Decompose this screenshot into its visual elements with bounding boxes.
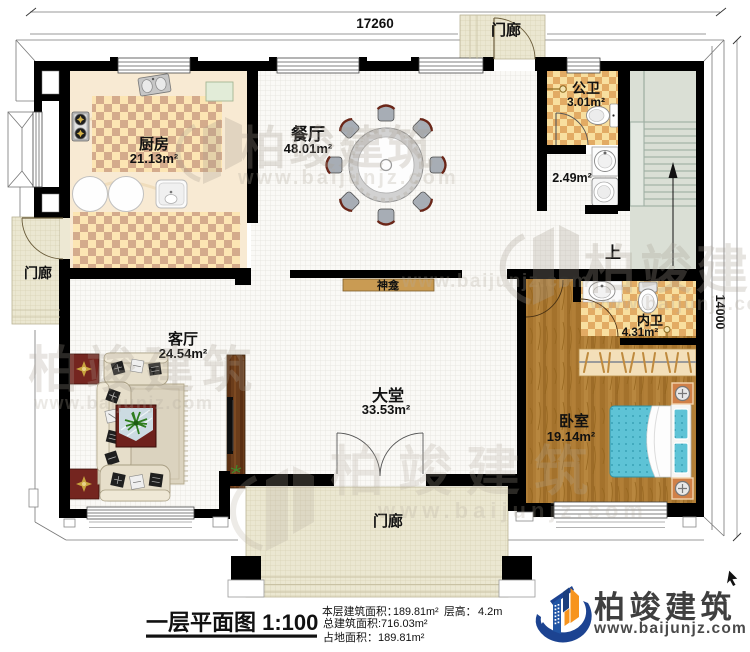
svg-text:17260: 17260 xyxy=(356,16,394,31)
svg-text:门廊: 门廊 xyxy=(491,21,521,39)
svg-text:21.13m²: 21.13m² xyxy=(130,151,179,166)
svg-text:柏竣建筑: 柏竣建筑 xyxy=(28,342,260,398)
svg-text:2.49m²: 2.49m² xyxy=(552,171,592,185)
svg-text:www.baijunjz.com: www.baijunjz.com xyxy=(401,271,590,292)
svg-text:一层平面图 1:100: 一层平面图 1:100 xyxy=(146,610,318,635)
svg-text:门廊: 门廊 xyxy=(24,265,52,281)
svg-text:公卫: 公卫 xyxy=(572,80,600,96)
svg-text:189.81m²: 189.81m² xyxy=(393,606,439,618)
svg-text:4.2m: 4.2m xyxy=(478,606,502,618)
svg-text:本层建筑面积：: 本层建筑面积： xyxy=(322,604,398,618)
svg-text:www.baijunjz.com: www.baijunjz.com xyxy=(237,167,459,189)
svg-text:3.01m²: 3.01m² xyxy=(567,95,605,109)
svg-text:www.baijunjz.com: www.baijunjz.com xyxy=(593,620,747,637)
svg-text:189.81m²: 189.81m² xyxy=(378,632,425,644)
svg-text:神龛: 神龛 xyxy=(377,278,400,292)
svg-text:层高：: 层高： xyxy=(444,604,476,618)
svg-text:33.53m²: 33.53m² xyxy=(362,402,411,417)
svg-text:内卫: 内卫 xyxy=(637,313,663,328)
svg-text:柏竣建筑: 柏竣建筑 xyxy=(584,242,750,300)
svg-text:www.baijunjz.com: www.baijunjz.com xyxy=(589,294,750,315)
svg-text:柏竣建筑: 柏竣建筑 xyxy=(330,442,602,502)
svg-text:卧室: 卧室 xyxy=(559,412,589,430)
svg-text:占地面积：: 占地面积： xyxy=(323,630,378,644)
svg-text:总建筑面积:716.03m²: 总建筑面积:716.03m² xyxy=(323,616,428,630)
svg-text:4.31m²: 4.31m² xyxy=(622,327,659,339)
svg-text:www.baijunjz.com: www.baijunjz.com xyxy=(33,393,213,413)
svg-text:www.baijunjz.com: www.baijunjz.com xyxy=(377,498,648,523)
